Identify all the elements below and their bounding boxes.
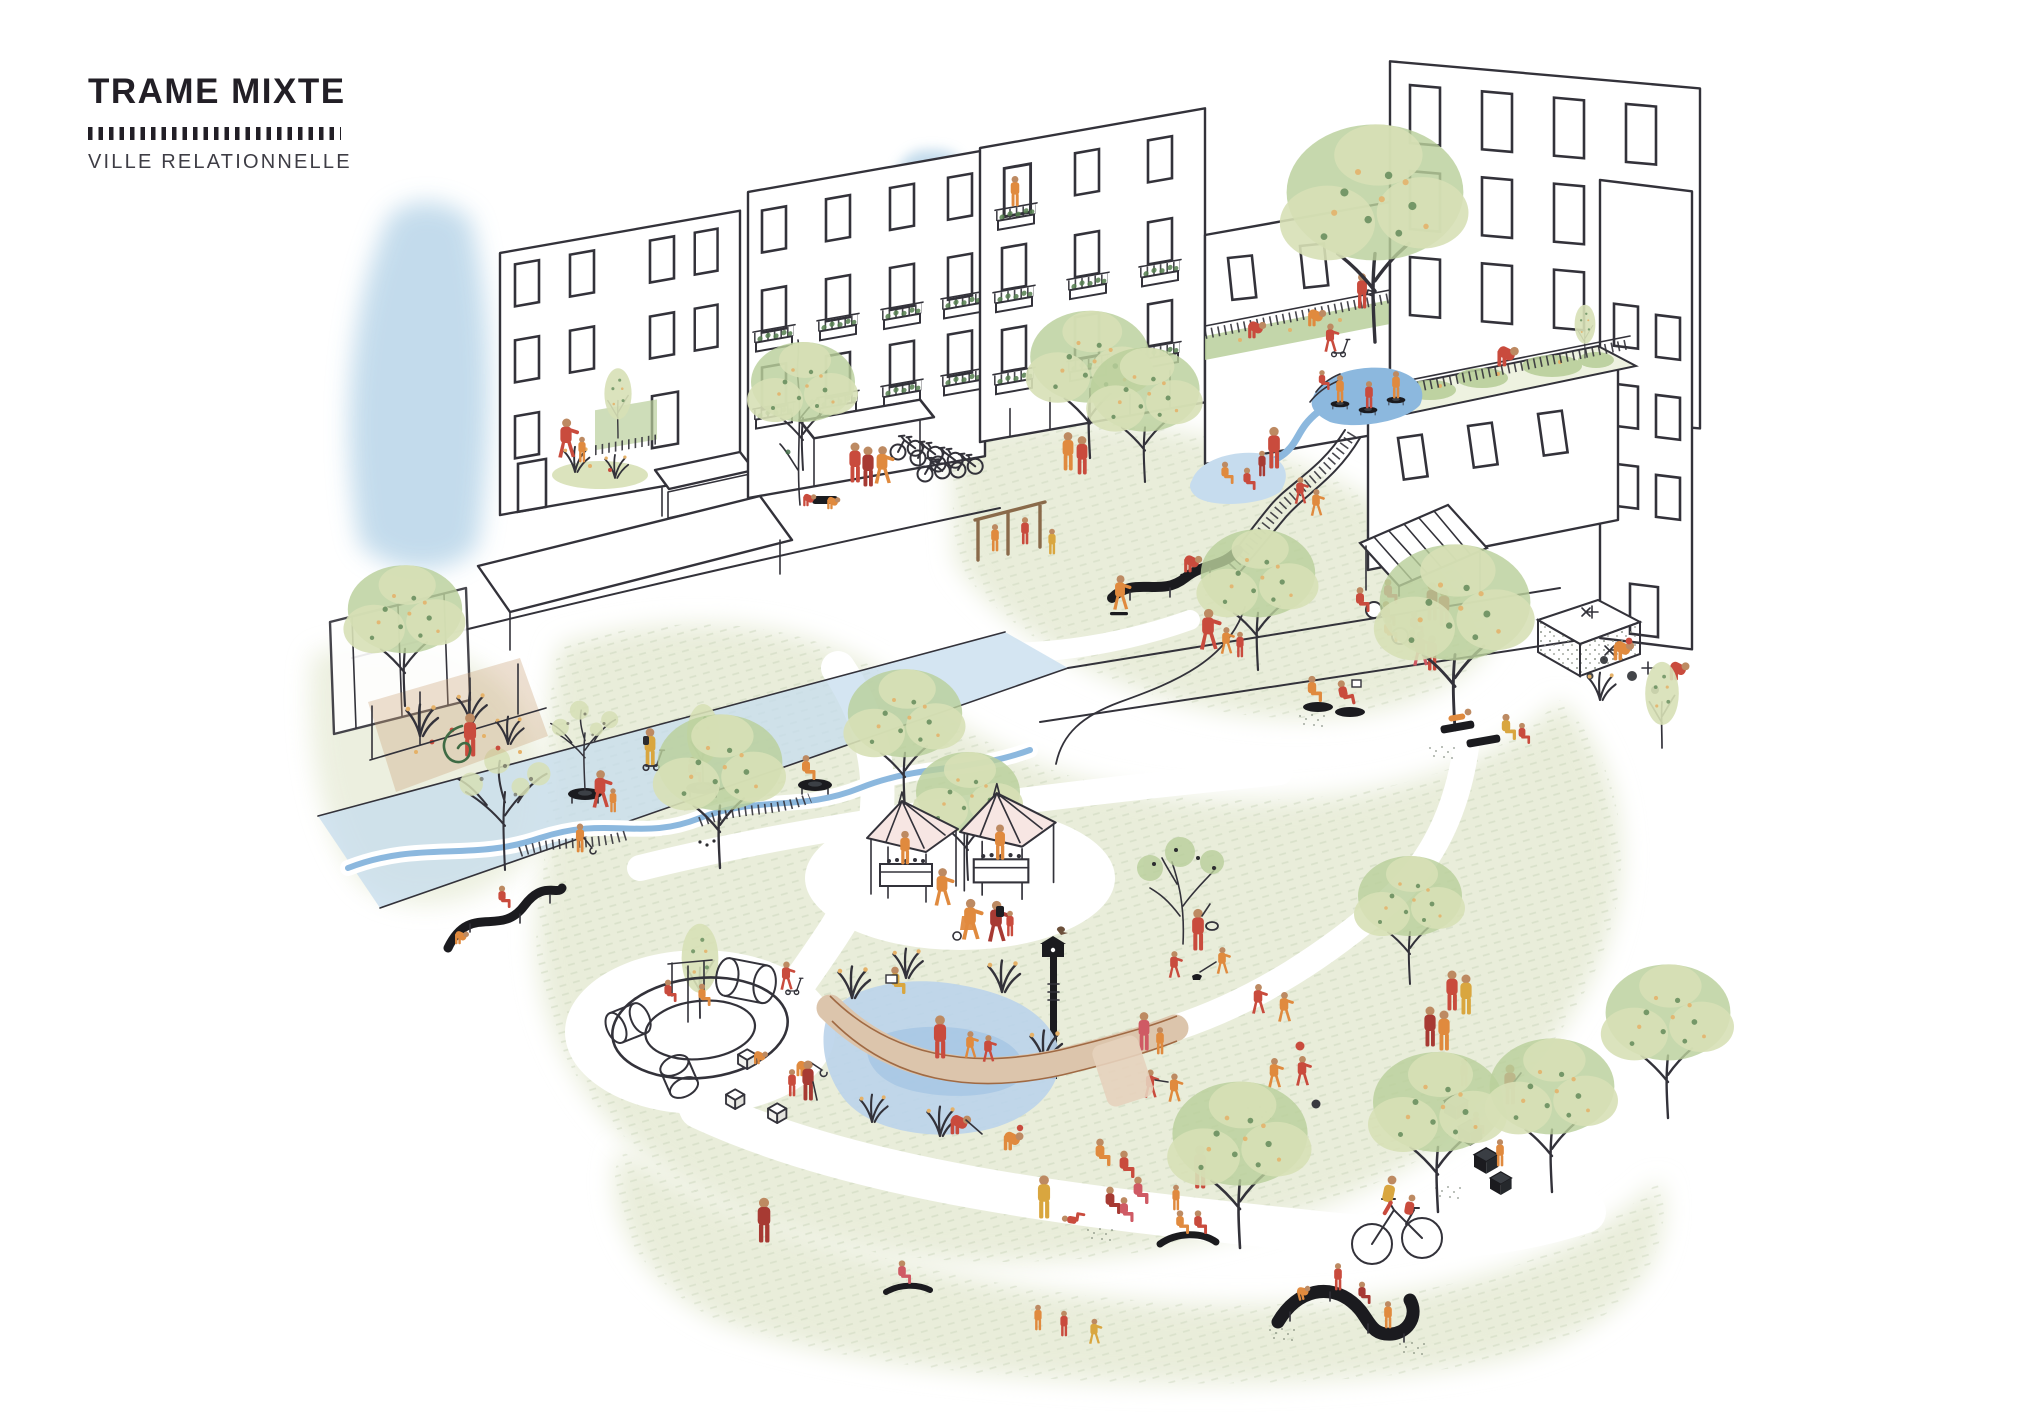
title-divider-stripes — [88, 127, 341, 140]
football — [1296, 1042, 1305, 1051]
building-balconies — [748, 150, 985, 509]
poster: TRAME MIXTE VILLE RELATIONNELLE — [0, 0, 2040, 1414]
wash-building-left — [349, 202, 489, 570]
title-block: TRAME MIXTE VILLE RELATIONNELLE — [88, 72, 352, 174]
building-left — [500, 211, 754, 518]
door-left-building — [518, 459, 546, 512]
page-title: TRAME MIXTE — [88, 72, 352, 112]
city-illustration — [0, 0, 2040, 1414]
page-subtitle: VILLE RELATIONNELLE — [88, 151, 352, 174]
canopy — [478, 496, 792, 612]
